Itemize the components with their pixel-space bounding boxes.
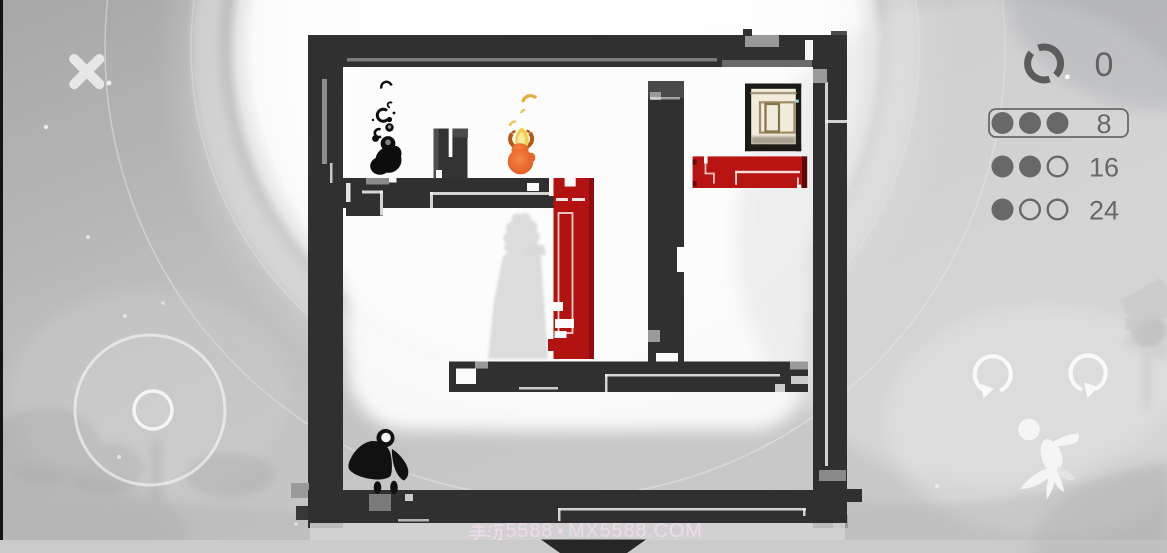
svg-text:16: 16 [1089, 152, 1119, 182]
svg-text:0: 0 [1095, 46, 1114, 84]
svg-text:5588: 5588 [506, 520, 554, 542]
svg-text:8: 8 [1096, 109, 1111, 139]
svg-text:24: 24 [1089, 195, 1119, 225]
svg-text:MX5588.COM: MX5588.COM [568, 520, 703, 542]
